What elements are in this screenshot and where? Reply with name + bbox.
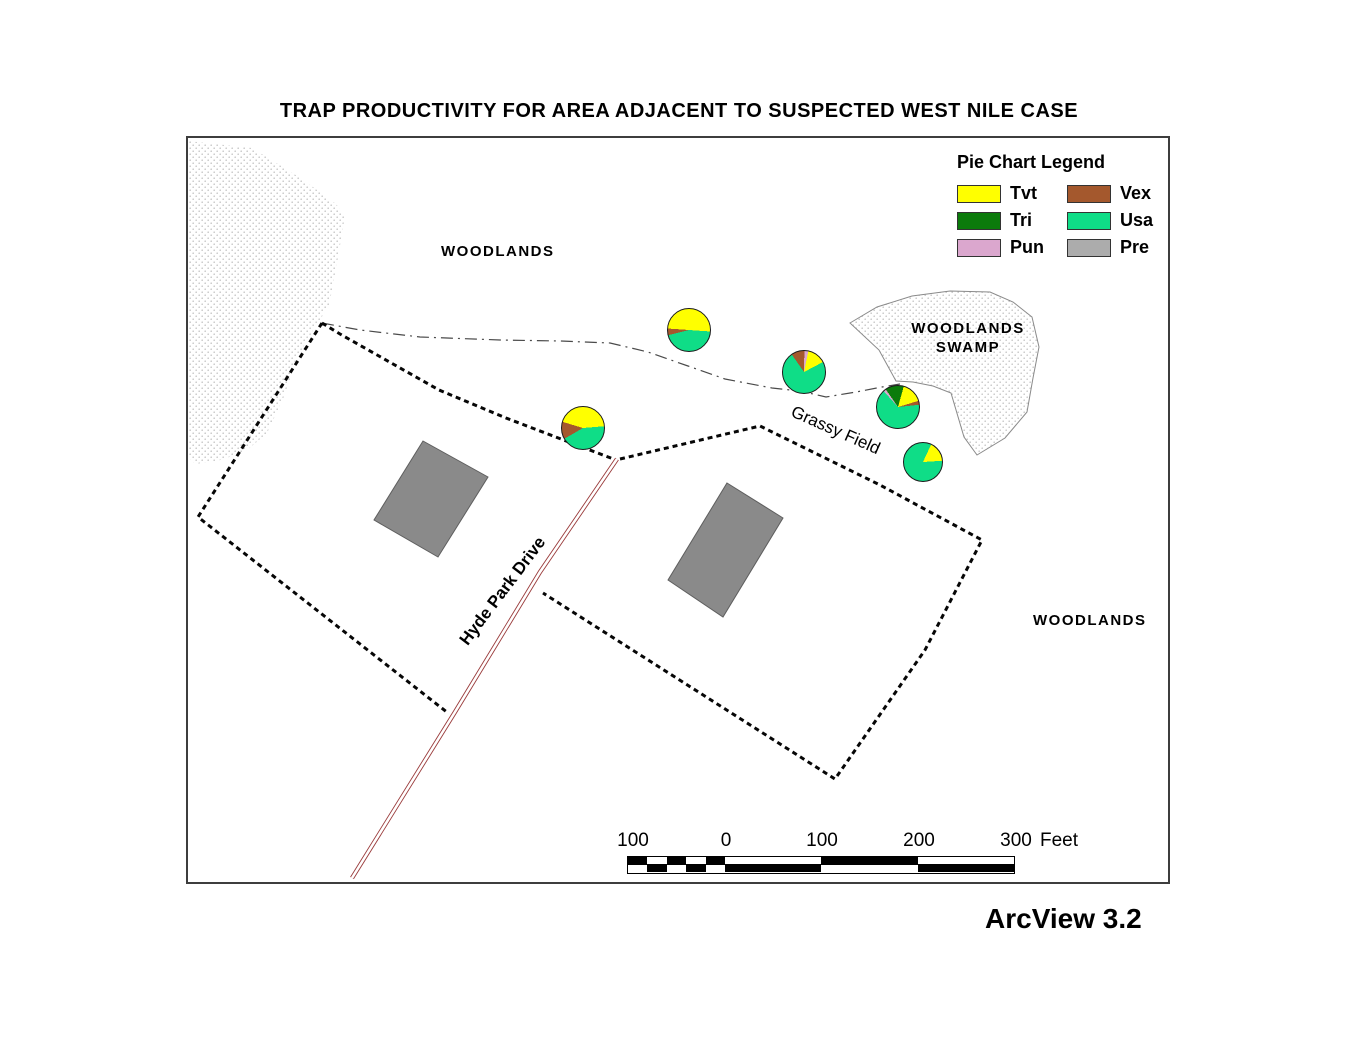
swamp-label-line1: WOODLANDS (898, 319, 1038, 338)
woodlands-stipple-area (188, 141, 345, 464)
trap-pie-3 (782, 350, 826, 394)
scale-bar-segment (686, 857, 705, 864)
legend-item-Pun: Pun (957, 237, 1067, 258)
legend-item-Tri: Tri (957, 210, 1067, 231)
scale-bar-segment (686, 865, 705, 872)
scale-tick-label: 100 (792, 830, 852, 852)
building-west (374, 441, 488, 557)
legend-label: Vex (1120, 183, 1151, 204)
scale-bar-segment (918, 865, 1014, 872)
map-title: TRAP PRODUCTIVITY FOR AREA ADJACENT TO S… (186, 100, 1172, 123)
swamp-label-line2: SWAMP (898, 338, 1038, 357)
legend-label: Usa (1120, 210, 1153, 231)
scale-bar-segment (706, 865, 725, 872)
scale-bar-segment (706, 857, 725, 864)
woodlands-right-label: WOODLANDS (1033, 612, 1147, 629)
legend-title: Pie Chart Legend (957, 152, 1172, 173)
scale-bar-segment (725, 857, 821, 864)
legend-swatch-Pun (957, 239, 1001, 257)
pie-chart-legend: Pie Chart Legend TvtVexTriUsaPunPre (957, 152, 1172, 258)
legend-swatch-Tvt (957, 185, 1001, 203)
page-canvas: TRAP PRODUCTIVITY FOR AREA ADJACENT TO S… (0, 0, 1354, 1048)
scale-bar-segment (647, 857, 666, 864)
legend-swatch-Usa (1067, 212, 1111, 230)
trap-pie-4 (876, 385, 920, 429)
swamp-label: WOODLANDS SWAMP (898, 319, 1038, 357)
woodlands-top-label: WOODLANDS (441, 243, 555, 260)
legend-item-Usa: Usa (1067, 210, 1172, 231)
scale-bar-segment (918, 857, 1014, 864)
scale-bar-segment (821, 865, 917, 872)
legend-items: TvtVexTriUsaPunPre (957, 183, 1172, 258)
legend-item-Pre: Pre (1067, 237, 1172, 258)
trap-pie-5 (903, 442, 943, 482)
scale-tick-label: 0 (696, 830, 756, 852)
scale-bar-segment (667, 857, 686, 864)
trap-pie-1 (561, 406, 605, 450)
scale-tick-label: 300 (986, 830, 1046, 852)
scale-tick-label: 200 (889, 830, 949, 852)
scale-bar-segment (628, 865, 647, 872)
scale-tick-label: 100 (603, 830, 663, 852)
legend-label: Tri (1010, 210, 1032, 231)
scale-bar-segment (647, 865, 666, 872)
legend-swatch-Vex (1067, 185, 1111, 203)
swamp-stipple-area (850, 291, 1039, 455)
legend-swatch-Pre (1067, 239, 1111, 257)
legend-label: Pre (1120, 237, 1149, 258)
scale-bar-segment (667, 865, 686, 872)
legend-item-Vex: Vex (1067, 183, 1172, 204)
scale-bar (627, 856, 1015, 874)
scale-bar-row (628, 864, 1014, 872)
legend-label: Tvt (1010, 183, 1037, 204)
building-east (668, 483, 783, 617)
scale-bar-segment (725, 865, 821, 872)
scale-bar-segment (628, 857, 647, 864)
scale-unit-label: Feet (1040, 830, 1110, 852)
legend-swatch-Tri (957, 212, 1001, 230)
trap-pie-2 (667, 308, 711, 352)
scale-bar-row (628, 857, 1014, 864)
software-credit: ArcView 3.2 (985, 903, 1170, 935)
scale-bar-segment (821, 857, 917, 864)
legend-item-Tvt: Tvt (957, 183, 1067, 204)
legend-label: Pun (1010, 237, 1044, 258)
